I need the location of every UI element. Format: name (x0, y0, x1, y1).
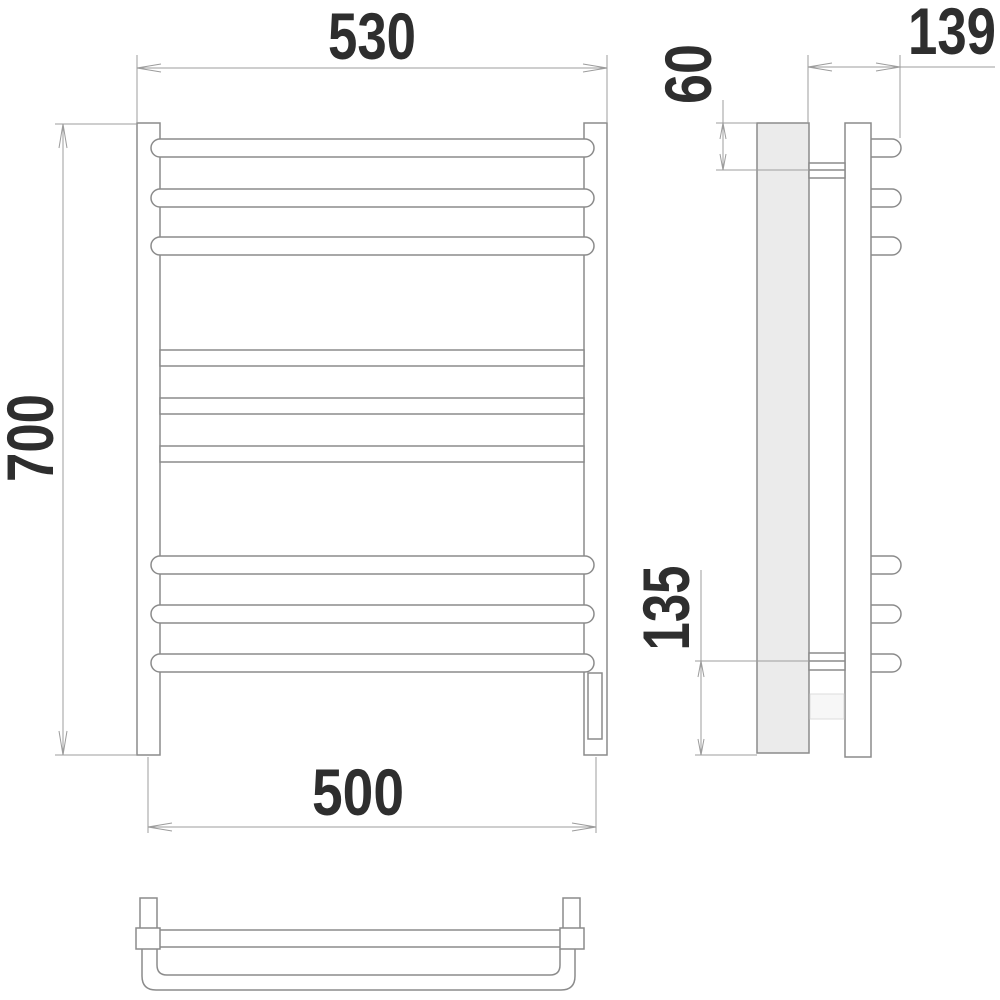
side-heater-outline (810, 694, 844, 719)
dim-60-label: 60 (651, 44, 725, 104)
bar-4 (151, 556, 594, 574)
side-collector (845, 123, 871, 757)
dim-139-label: 139 (908, 0, 996, 68)
heating-element (588, 673, 602, 739)
dim-530-label: 530 (328, 0, 416, 73)
front-view (137, 123, 607, 755)
bottom-left-block (136, 928, 160, 949)
dimension-139: 139 (808, 0, 996, 138)
dim-135-label: 135 (629, 566, 703, 651)
bar-2 (151, 189, 594, 207)
wall-panel (757, 123, 809, 753)
u-bar-inner (157, 949, 560, 975)
dim-700-label: 700 (0, 394, 67, 482)
bar-5 (151, 605, 594, 623)
bar-1 (151, 139, 594, 157)
dim-500-label: 500 (312, 755, 404, 829)
thin-bar-2 (160, 398, 584, 414)
dimension-700: 700 (0, 124, 137, 755)
dimension-530: 530 (137, 0, 607, 123)
thin-bar-1 (160, 350, 584, 366)
dim-700-extension-lines (55, 124, 137, 755)
bottom-right-block (560, 928, 584, 949)
u-bar-outer (142, 949, 575, 990)
top-bracket (809, 163, 845, 178)
bottom-bracket (809, 653, 845, 670)
drawing-canvas: 530 700 500 139 60 135 (0, 0, 1000, 1000)
bar-3 (151, 237, 594, 255)
bottom-right-stub (563, 898, 580, 930)
dimension-500: 500 (148, 755, 596, 833)
thin-bar-3 (160, 446, 584, 462)
bottom-view (136, 898, 584, 990)
bar-6 (151, 654, 594, 672)
bottom-collector-lines (160, 930, 560, 947)
towel-rail-drawing: 530 700 500 139 60 135 (0, 0, 1000, 1000)
side-view (757, 123, 901, 757)
bottom-left-stub (140, 898, 157, 930)
